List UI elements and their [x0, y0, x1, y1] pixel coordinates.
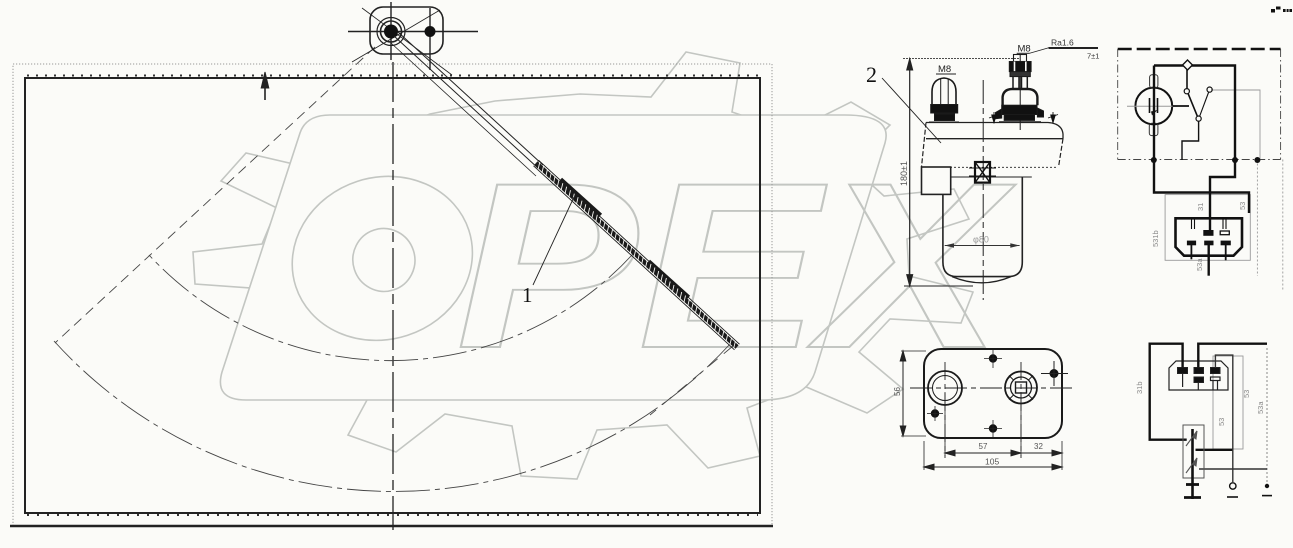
svg-text:31: 31	[1196, 203, 1205, 211]
svg-text:53: 53	[1217, 418, 1226, 426]
svg-text:105: 105	[985, 457, 999, 467]
svg-text:M8: M8	[938, 64, 951, 75]
svg-text:53: 53	[1238, 202, 1247, 210]
svg-text:531b: 531b	[1151, 230, 1160, 247]
svg-text:Ra1.6: Ra1.6	[1051, 38, 1074, 48]
svg-text:53a: 53a	[1256, 401, 1265, 414]
svg-text:32: 32	[1034, 442, 1043, 451]
svg-text:31b: 31b	[1135, 381, 1144, 394]
svg-text:53: 53	[1242, 390, 1251, 398]
svg-text:φ80: φ80	[973, 235, 989, 245]
svg-text:7±1: 7±1	[1087, 52, 1099, 61]
svg-text:180±1: 180±1	[899, 161, 909, 186]
svg-text:2: 2	[866, 62, 877, 87]
svg-text:53a: 53a	[1195, 258, 1204, 271]
svg-text:56: 56	[893, 387, 902, 396]
svg-text:57: 57	[979, 442, 988, 451]
svg-text:1: 1	[522, 283, 533, 307]
